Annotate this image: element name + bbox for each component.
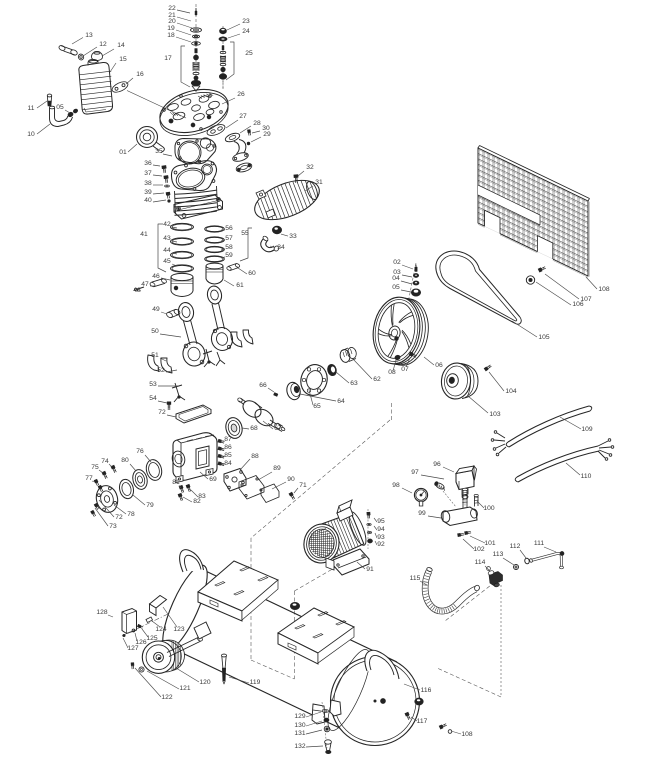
svg-text:108: 108 (461, 731, 472, 738)
svg-text:97: 97 (411, 469, 419, 476)
svg-text:98: 98 (392, 482, 400, 489)
svg-text:36: 36 (144, 160, 152, 167)
svg-text:79: 79 (146, 502, 154, 509)
svg-text:82: 82 (193, 498, 201, 505)
svg-text:86: 86 (224, 444, 232, 451)
svg-text:74: 74 (101, 458, 109, 465)
svg-text:43: 43 (163, 235, 171, 242)
svg-text:39: 39 (144, 189, 152, 196)
svg-text:91: 91 (366, 566, 374, 573)
svg-text:68: 68 (250, 425, 258, 432)
svg-text:80: 80 (121, 457, 129, 464)
svg-text:93: 93 (377, 534, 385, 541)
svg-text:19: 19 (167, 25, 175, 32)
svg-text:07: 07 (401, 366, 409, 373)
svg-text:66: 66 (259, 382, 267, 389)
svg-text:111: 111 (534, 540, 544, 547)
svg-text:100: 100 (483, 505, 494, 512)
svg-text:87: 87 (224, 436, 232, 443)
svg-text:65: 65 (313, 403, 321, 410)
svg-text:42: 42 (163, 221, 171, 228)
svg-text:24: 24 (242, 28, 250, 35)
svg-text:59: 59 (225, 252, 233, 259)
svg-text:04: 04 (392, 275, 400, 282)
svg-text:85: 85 (224, 452, 232, 459)
svg-text:18: 18 (167, 32, 175, 39)
svg-text:27: 27 (239, 113, 247, 120)
svg-text:46: 46 (152, 273, 160, 280)
svg-text:28: 28 (253, 120, 261, 127)
svg-text:130: 130 (294, 722, 305, 729)
svg-text:32: 32 (306, 164, 314, 171)
svg-text:122: 122 (161, 694, 172, 701)
svg-text:89: 89 (273, 465, 281, 472)
svg-text:17: 17 (164, 55, 172, 62)
svg-text:115: 115 (410, 575, 421, 582)
svg-text:129: 129 (294, 713, 305, 720)
svg-text:41: 41 (140, 231, 148, 238)
svg-text:45: 45 (163, 258, 171, 265)
svg-text:121: 121 (179, 685, 190, 692)
svg-text:103: 103 (489, 411, 500, 418)
svg-text:62: 62 (373, 376, 381, 383)
svg-text:47: 47 (141, 281, 149, 288)
svg-text:99: 99 (418, 510, 426, 517)
svg-text:22: 22 (168, 5, 176, 12)
svg-text:60: 60 (248, 270, 256, 277)
svg-text:67: 67 (274, 425, 282, 432)
svg-text:106: 106 (572, 301, 583, 308)
svg-text:96: 96 (433, 461, 441, 468)
svg-text:125: 125 (146, 635, 157, 642)
svg-text:52: 52 (157, 367, 165, 374)
svg-text:05: 05 (56, 104, 64, 111)
svg-text:132: 132 (294, 743, 305, 750)
svg-text:29: 29 (263, 131, 271, 138)
svg-text:117: 117 (417, 718, 428, 725)
svg-text:23: 23 (242, 18, 250, 25)
svg-text:53: 53 (149, 381, 157, 388)
svg-text:124: 124 (155, 626, 166, 633)
svg-text:84: 84 (224, 460, 232, 467)
svg-text:20: 20 (168, 18, 176, 25)
svg-text:08: 08 (388, 369, 396, 376)
svg-text:72: 72 (158, 409, 166, 416)
svg-text:49: 49 (152, 306, 160, 313)
svg-text:06: 06 (435, 362, 443, 369)
svg-text:112: 112 (510, 543, 521, 550)
svg-text:35: 35 (155, 148, 163, 155)
svg-text:119: 119 (250, 679, 261, 686)
svg-text:14: 14 (117, 42, 125, 49)
svg-text:116: 116 (421, 687, 432, 694)
svg-text:34: 34 (277, 244, 285, 251)
svg-text:31: 31 (315, 179, 323, 186)
svg-text:131: 131 (294, 730, 305, 737)
svg-text:113: 113 (493, 551, 504, 558)
svg-text:02: 02 (393, 259, 401, 266)
svg-text:105: 105 (538, 334, 549, 341)
svg-text:44: 44 (163, 247, 171, 254)
svg-text:13: 13 (85, 32, 93, 39)
svg-text:37: 37 (144, 170, 152, 177)
svg-text:71: 71 (299, 482, 307, 489)
svg-text:102: 102 (473, 546, 484, 553)
svg-text:127: 127 (127, 645, 138, 652)
svg-text:26: 26 (237, 91, 245, 98)
svg-text:56: 56 (225, 225, 233, 232)
svg-text:63: 63 (350, 380, 358, 387)
svg-text:88: 88 (251, 453, 259, 460)
svg-text:50: 50 (151, 328, 159, 335)
svg-text:120: 120 (199, 679, 210, 686)
svg-text:05: 05 (392, 284, 400, 291)
svg-text:58: 58 (225, 244, 233, 251)
svg-text:11: 11 (28, 105, 35, 112)
svg-text:110: 110 (581, 473, 592, 480)
svg-text:01: 01 (119, 149, 127, 156)
svg-text:123: 123 (173, 626, 184, 633)
svg-text:73: 73 (109, 523, 117, 530)
svg-text:61: 61 (236, 282, 244, 289)
svg-text:25: 25 (245, 50, 253, 57)
svg-text:90: 90 (287, 476, 295, 483)
svg-text:101: 101 (484, 540, 495, 547)
svg-text:51: 51 (151, 352, 159, 359)
svg-text:92: 92 (377, 541, 385, 548)
svg-text:54: 54 (149, 395, 157, 402)
svg-text:95: 95 (377, 518, 385, 525)
svg-text:78: 78 (127, 511, 135, 518)
svg-text:109: 109 (581, 426, 592, 433)
svg-text:72: 72 (115, 514, 123, 521)
svg-text:69: 69 (209, 476, 217, 483)
svg-text:33: 33 (289, 233, 297, 240)
svg-text:12: 12 (99, 41, 107, 48)
svg-text:128: 128 (96, 609, 107, 616)
svg-text:57: 57 (225, 235, 233, 242)
svg-text:75: 75 (91, 464, 99, 471)
svg-text:104: 104 (505, 388, 516, 395)
svg-text:76: 76 (136, 448, 144, 455)
svg-text:38: 38 (144, 180, 152, 187)
svg-text:114: 114 (475, 559, 486, 566)
svg-text:81: 81 (172, 479, 180, 486)
svg-text:10: 10 (27, 131, 35, 138)
svg-text:108: 108 (598, 286, 609, 293)
svg-text:77: 77 (85, 475, 93, 482)
svg-text:16: 16 (136, 71, 144, 78)
svg-text:64: 64 (337, 398, 345, 405)
svg-text:15: 15 (119, 56, 127, 63)
svg-text:94: 94 (377, 526, 385, 533)
svg-text:40: 40 (144, 197, 152, 204)
